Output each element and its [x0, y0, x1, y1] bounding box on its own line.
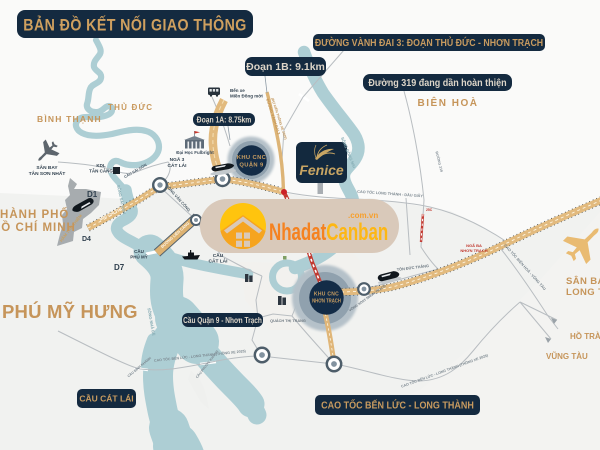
svg-text:D1: D1 — [87, 190, 98, 199]
svg-text:Đường 319 đang dần hoàn thiện: Đường 319 đang dần hoàn thiện — [368, 78, 506, 90]
svg-text:TÂN CẢNG: TÂN CẢNG — [89, 168, 113, 174]
svg-text:LONG THÀNH: LONG THÀNH — [566, 287, 600, 298]
svg-text:Đại Học Fulbright: Đại Học Fulbright — [176, 150, 214, 155]
svg-text:BẢN ĐỒ KẾT NỐI GIAO THÔNG: BẢN ĐỒ KẾT NỐI GIAO THÔNG — [23, 15, 246, 34]
svg-text:SÂN BAY: SÂN BAY — [36, 164, 58, 171]
svg-text:CÁT LÁI: CÁT LÁI — [168, 162, 188, 169]
svg-text:NGÃ 3: NGÃ 3 — [170, 156, 185, 163]
svg-text:Miền Đông mới: Miền Đông mới — [230, 94, 263, 99]
svg-text:THÀNH PHỐ: THÀNH PHỐ — [0, 207, 69, 221]
svg-text:CẦU: CẦU — [134, 248, 144, 254]
svg-text:THỦ ĐỨC: THỦ ĐỨC — [108, 103, 153, 112]
svg-text:CẦU CÁT LÁI: CẦU CÁT LÁI — [79, 394, 133, 404]
svg-text:TÂN SƠN NHẤT: TÂN SƠN NHẤT — [29, 170, 66, 177]
svg-text:BÌNH THẠNH: BÌNH THẠNH — [37, 114, 102, 124]
svg-text:CÁT LÁI: CÁT LÁI — [209, 258, 229, 265]
svg-text:Fenice: Fenice — [299, 162, 344, 178]
svg-text:BIÊN HOÀ: BIÊN HOÀ — [418, 96, 479, 109]
svg-text:NhadatCanban: NhadatCanban — [269, 219, 388, 246]
svg-text:NHƠN TRẠCH: NHƠN TRẠCH — [312, 298, 341, 303]
svg-text:NHƠN TRẠCH: NHƠN TRẠCH — [460, 248, 487, 253]
svg-text:PHÚ MỸ HƯNG: PHÚ MỸ HƯNG — [2, 301, 138, 322]
svg-text:HỒ TRÀM: HỒ TRÀM — [570, 331, 600, 341]
svg-text:HỒ CHÍ MINH: HỒ CHÍ MINH — [0, 221, 76, 234]
svg-text:KDL: KDL — [96, 163, 105, 168]
svg-text:Bến xe: Bến xe — [230, 87, 245, 93]
svg-text:D7: D7 — [114, 263, 125, 272]
svg-text:Cầu Quận 9 - Nhơn Trạch: Cầu Quận 9 - Nhơn Trạch — [183, 315, 262, 325]
svg-text:PHÚ MỸ: PHÚ MỸ — [130, 254, 148, 260]
svg-text:KHU CNC: KHU CNC — [237, 155, 267, 161]
svg-text:CẦU: CẦU — [213, 252, 224, 259]
svg-text:QUẬN 9: QUẬN 9 — [239, 162, 264, 169]
svg-text:CAO TỐC BẾN LỨC - LONG THÀNH: CAO TỐC BẾN LỨC - LONG THÀNH — [321, 399, 474, 412]
svg-text:D4: D4 — [82, 236, 91, 243]
svg-text:ĐƯỜNG VÀNH ĐAI 3: ĐOẠN THỦ ĐỨC: ĐƯỜNG VÀNH ĐAI 3: ĐOẠN THỦ ĐỨC - NHƠN TR… — [315, 36, 543, 48]
svg-text:Đoạn 1B: 9.1km: Đoạn 1B: 9.1km — [246, 61, 325, 73]
svg-text:VŨNG TÀU: VŨNG TÀU — [546, 352, 588, 361]
svg-text:25C: 25C — [426, 208, 433, 212]
svg-text:Đoạn 1A: 8.75km: Đoạn 1A: 8.75km — [197, 115, 252, 125]
svg-text:QUÁCH THỊ TRANG: QUÁCH THỊ TRANG — [270, 318, 306, 323]
svg-text:SÂN BAY: SÂN BAY — [566, 275, 600, 287]
svg-text:KHU CNC: KHU CNC — [314, 292, 339, 298]
